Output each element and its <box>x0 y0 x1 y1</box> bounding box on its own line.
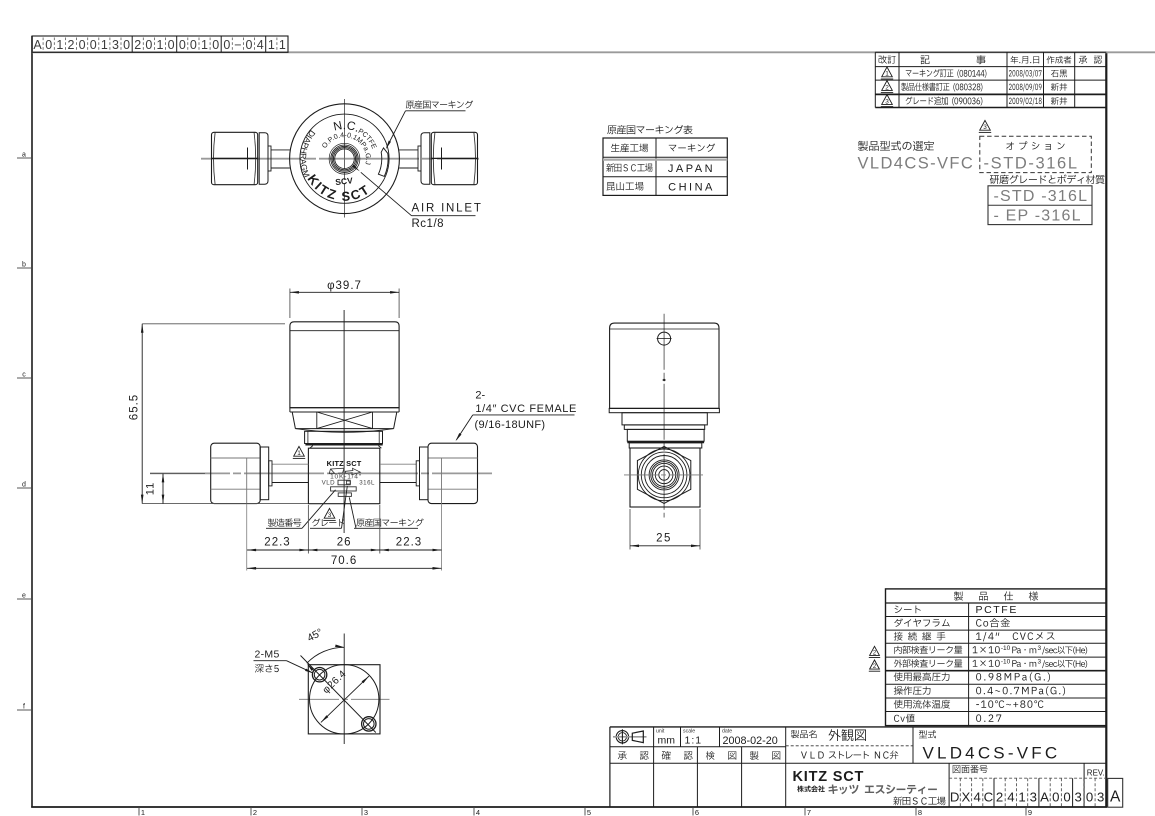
svg-text:1: 1 <box>157 38 164 52</box>
svg-text:PCTFE: PCTFE <box>976 604 1018 616</box>
svg-text:Rc1/8: Rc1/8 <box>412 218 445 230</box>
svg-text:2: 2 <box>996 789 1003 804</box>
svg-text:0: 0 <box>79 38 86 52</box>
svg-text:1: 1 <box>279 38 286 52</box>
svg-text:b: b <box>22 262 26 269</box>
svg-text:45°: 45° <box>305 626 325 644</box>
svg-text:3: 3 <box>1075 789 1082 804</box>
svg-text:date: date <box>722 729 732 735</box>
svg-text:d: d <box>22 482 26 489</box>
svg-text:AIR INLET: AIR INLET <box>412 203 483 215</box>
svg-text:6: 6 <box>695 808 699 816</box>
svg-text:2: 2 <box>253 808 257 816</box>
svg-text:70.6: 70.6 <box>331 555 357 567</box>
svg-text:−: − <box>234 38 241 52</box>
svg-text:A: A <box>33 38 42 52</box>
svg-text:CHINA: CHINA <box>668 182 715 194</box>
svg-text:0: 0 <box>45 38 52 52</box>
svg-text:3: 3 <box>1030 789 1037 804</box>
svg-text:0: 0 <box>246 38 253 52</box>
svg-text:0: 0 <box>223 38 230 52</box>
svg-text:A: A <box>1040 789 1049 804</box>
svg-text:D: D <box>950 789 960 804</box>
svg-text:5: 5 <box>587 808 591 816</box>
svg-text:-10: -10 <box>1001 645 1011 652</box>
svg-text:0: 0 <box>1052 789 1059 804</box>
svg-text:C: C <box>984 789 994 804</box>
svg-text:0: 0 <box>90 38 97 52</box>
svg-text:3: 3 <box>328 512 332 519</box>
svg-text:0: 0 <box>1086 789 1093 804</box>
svg-text:8: 8 <box>918 808 922 816</box>
svg-text:2: 2 <box>134 38 141 52</box>
svg-text:1: 1 <box>56 38 63 52</box>
svg-text:SCV: SCV <box>335 175 354 187</box>
svg-text:2-: 2- <box>475 390 485 402</box>
svg-text:4: 4 <box>257 38 264 52</box>
svg-text:2008-02-20: 2008-02-20 <box>723 735 778 747</box>
svg-text:0: 0 <box>179 38 186 52</box>
svg-text:f: f <box>23 704 25 711</box>
svg-text:0: 0 <box>1063 789 1070 804</box>
svg-text:11: 11 <box>145 482 157 495</box>
svg-text:KITZ SCT: KITZ SCT <box>327 459 362 468</box>
svg-text:1: 1 <box>885 71 889 78</box>
svg-text:1: 1 <box>101 38 108 52</box>
svg-text:316L: 316L <box>359 479 375 486</box>
svg-text:4: 4 <box>974 789 981 804</box>
svg-text:(9/16-18UNF): (9/16-18UNF) <box>475 419 546 431</box>
svg-text:1: 1 <box>141 808 145 816</box>
svg-text:REV.: REV. <box>1087 769 1105 778</box>
svg-text:0: 0 <box>168 38 175 52</box>
svg-text:3: 3 <box>885 98 889 105</box>
svg-text:VLD: VLD <box>322 479 336 486</box>
svg-text:4: 4 <box>1007 789 1014 804</box>
svg-text:mm: mm <box>658 735 676 747</box>
svg-text:X: X <box>962 789 971 804</box>
svg-text:a: a <box>22 152 26 159</box>
svg-text:25: 25 <box>656 532 672 544</box>
svg-text:0: 0 <box>145 38 152 52</box>
svg-text:3: 3 <box>1097 789 1104 804</box>
svg-text:3: 3 <box>364 808 368 816</box>
svg-text:φ39.7: φ39.7 <box>327 280 362 292</box>
svg-text:DIAPHRAGM: DIAPHRAGM <box>298 128 317 179</box>
svg-text:22.3: 22.3 <box>396 537 422 549</box>
svg-text:0: 0 <box>190 38 197 52</box>
svg-text:1: 1 <box>268 38 275 52</box>
svg-text:1: 1 <box>1018 789 1025 804</box>
svg-text:-STD-316L: -STD-316L <box>984 155 1079 173</box>
svg-text:3: 3 <box>112 38 119 52</box>
svg-text:- EP -316L: - EP -316L <box>994 207 1082 224</box>
svg-text:9: 9 <box>1028 808 1032 816</box>
svg-text:VLD4CS-VFC: VLD4CS-VFC <box>923 744 1061 763</box>
svg-text:KITZ SCT: KITZ SCT <box>793 769 865 785</box>
svg-text:JAPAN: JAPAN <box>668 163 715 175</box>
svg-text:2: 2 <box>885 84 889 91</box>
svg-text:2: 2 <box>68 38 75 52</box>
svg-text:0: 0 <box>212 38 219 52</box>
svg-text:4: 4 <box>476 808 480 816</box>
svg-text:-10: -10 <box>1001 659 1011 666</box>
svg-text:-STD -316L: -STD -316L <box>994 188 1089 205</box>
svg-text:1/4″ CVC FEMALE: 1/4″ CVC FEMALE <box>475 403 577 415</box>
svg-text:e: e <box>22 593 26 600</box>
svg-text:A: A <box>1110 789 1121 806</box>
svg-text:VLD4CS-VFC: VLD4CS-VFC <box>858 155 975 173</box>
svg-text:2-M5: 2-M5 <box>255 649 280 661</box>
svg-text:3: 3 <box>983 124 987 131</box>
svg-text:7: 7 <box>807 808 811 816</box>
svg-text:65.5: 65.5 <box>129 394 141 420</box>
svg-text:26: 26 <box>337 537 352 549</box>
svg-text:22.3: 22.3 <box>264 537 290 549</box>
svg-text:1:1: 1:1 <box>685 735 703 747</box>
svg-text:1: 1 <box>201 38 208 52</box>
svg-text:0: 0 <box>123 38 130 52</box>
svg-text:3: 3 <box>1038 645 1042 652</box>
svg-text:c: c <box>22 372 26 379</box>
svg-text:3: 3 <box>1038 659 1042 666</box>
svg-text:1: 1 <box>297 450 301 457</box>
